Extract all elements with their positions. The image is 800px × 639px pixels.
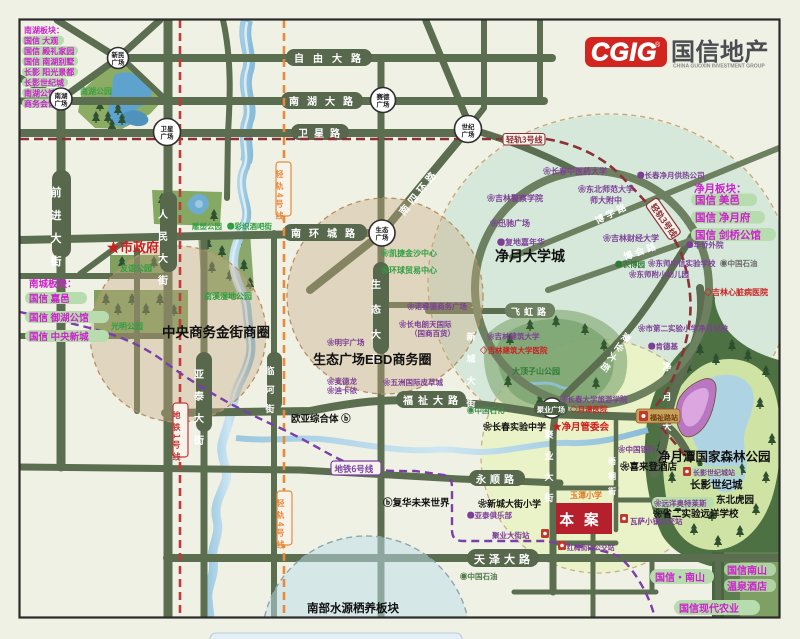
svg-text:净月大学城: 净月大学城 xyxy=(495,246,565,266)
svg-text:南城板块：: 南城板块： xyxy=(29,276,77,290)
svg-text:❀明宇广场: ❀明宇广场 xyxy=(326,337,365,348)
svg-text:●肯德基: ●肯德基 xyxy=(648,341,678,352)
svg-text:聚业大街站: 聚业大街站 xyxy=(491,530,530,541)
svg-text:前进大街: 前进大街 xyxy=(48,184,64,276)
svg-text:南湖板块：: 南湖板块： xyxy=(24,25,64,36)
svg-text:轻轨3号线: 轻轨3号线 xyxy=(506,135,542,146)
svg-text:本案: 本案 xyxy=(560,509,609,530)
svg-text:❀迅驰广场: ❀迅驰广场 xyxy=(489,218,530,229)
svg-text:大顶子山公园: 大顶子山公园 xyxy=(512,366,560,377)
svg-text:●华侨外院: ●华侨外院 xyxy=(686,240,724,251)
svg-text:◇月潭医院: ◇月潭医院 xyxy=(569,404,608,415)
svg-text:雕塑公园: 雕塑公园 xyxy=(192,221,222,232)
svg-text:福祉路站: 福祉路站 xyxy=(649,413,678,423)
svg-text:CGIG: CGIG xyxy=(591,39,657,67)
svg-text:福祉大路: 福祉大路 xyxy=(402,392,463,407)
svg-text:®: ® xyxy=(655,41,661,49)
svg-text:◉中国石油: ◉中国石油 xyxy=(720,258,758,269)
svg-text:（国商百货）: （国商百货） xyxy=(410,328,455,339)
svg-text:临河街: 临河街 xyxy=(264,364,277,421)
svg-text:❀五洲国际皮草城: ❀五洲国际皮草城 xyxy=(382,377,443,388)
svg-text:◉中国石油: ◉中国石油 xyxy=(460,571,498,582)
svg-text:长影世纪城: 长影世纪城 xyxy=(24,78,64,89)
svg-text:南溪湿地公园: 南溪湿地公园 xyxy=(204,291,252,302)
svg-text:国信·南山: 国信·南山 xyxy=(655,569,705,584)
svg-text:国信 南湖别墅: 国信 南湖别墅 xyxy=(24,57,74,68)
svg-text:❀环球贸易中心: ❀环球贸易中心 xyxy=(380,265,437,276)
svg-text:❀东师附小幼儿园: ❀东师附小幼儿园 xyxy=(628,269,689,280)
svg-text:聚业大街: 聚业大街 xyxy=(543,428,556,512)
svg-text:广场: 广场 xyxy=(462,129,476,139)
svg-text:亚泰大街: 亚泰大街 xyxy=(192,366,207,454)
svg-text:ⓑ复华未来世界: ⓑ复华未来世界 xyxy=(383,495,450,509)
svg-text:❀迪卡侬: ❀迪卡侬 xyxy=(326,385,357,396)
svg-text:广场: 广场 xyxy=(55,98,69,108)
svg-text:❀长春中医药大学: ❀长春中医药大学 xyxy=(542,166,607,177)
svg-text:❀东师中信实验学校: ❀东师中信实验学校 xyxy=(647,258,716,269)
svg-text:中央商务金街商圈: 中央商务金街商圈 xyxy=(162,321,270,341)
svg-text:国信 净月府: 国信 净月府 xyxy=(695,210,751,225)
svg-text:★净月管委会: ★净月管委会 xyxy=(552,419,610,433)
svg-text:南湖大路: 南湖大路 xyxy=(289,93,361,108)
svg-text:❀吉林财经大学: ❀吉林财经大学 xyxy=(602,233,659,244)
svg-text:●彩织酒吧街: ●彩织酒吧街 xyxy=(227,221,272,232)
svg-text:飞虹路: 飞虹路 xyxy=(511,305,550,318)
svg-text:自由大路: 自由大路 xyxy=(294,50,370,65)
svg-text:红梅街口公交站: 红梅街口公交站 xyxy=(567,542,615,552)
svg-text:国信 御湖公馆: 国信 御湖公馆 xyxy=(29,310,89,324)
svg-text:天泽大路: 天泽大路 xyxy=(474,551,534,567)
svg-text:永顺路: 永顺路 xyxy=(475,471,518,486)
svg-text:光明公园: 光明公园 xyxy=(110,321,143,332)
svg-text:国信 殿礼家园: 国信 殿礼家园 xyxy=(24,46,74,57)
svg-text:●亚泰俱乐部: ●亚泰俱乐部 xyxy=(467,510,512,521)
svg-text:广场: 广场 xyxy=(376,232,390,242)
svg-text:南环城路: 南环城路 xyxy=(291,225,363,240)
svg-text:师大附中: 师大附中 xyxy=(590,195,622,206)
svg-text:国信 美邑: 国信 美邑 xyxy=(695,193,740,208)
svg-text:广场: 广场 xyxy=(377,99,391,109)
svg-text:轻轨4号线: 轻轨4号线 xyxy=(274,169,285,222)
svg-text:地铁1号线: 地铁1号线 xyxy=(171,410,182,463)
svg-text:CHINA GUOXIN INVESTMENT GROUP: CHINA GUOXIN INVESTMENT GROUP xyxy=(673,64,765,70)
svg-text:国信现代农业: 国信现代农业 xyxy=(679,600,739,615)
svg-text:生态广场EBD商务圈: 生态广场EBD商务圈 xyxy=(313,349,431,368)
svg-text:欧亚综合体 ⓑ: 欧亚综合体 ⓑ xyxy=(291,411,351,425)
svg-text:玉潭小学: 玉潭小学 xyxy=(570,490,602,501)
svg-text:长影世纪城站: 长影世纪城站 xyxy=(693,468,735,478)
svg-text:❀吉林警察学院: ❀吉林警察学院 xyxy=(486,193,543,204)
svg-text:东北虎园: 东北虎园 xyxy=(716,492,754,506)
svg-text:国信 中央新城: 国信 中央新城 xyxy=(29,329,89,343)
svg-text:❀诺睿德商务广场: ❀诺睿德商务广场 xyxy=(406,301,467,312)
svg-text:南湖公园: 南湖公园 xyxy=(80,86,112,97)
svg-text:广场: 广场 xyxy=(112,57,126,67)
svg-text:温泉酒店: 温泉酒店 xyxy=(727,578,767,593)
svg-text:国信南山: 国信南山 xyxy=(727,562,767,577)
svg-text:❀市第二实验小学净月分校: ❀市第二实验小学净月分校 xyxy=(637,323,728,334)
svg-text:南部水源栖养板块: 南部水源栖养板块 xyxy=(307,600,399,616)
svg-text:广场: 广场 xyxy=(161,131,175,141)
svg-text:❀长春实验中学: ❀长春实验中学 xyxy=(482,420,546,433)
svg-text:国信 嘉邑: 国信 嘉邑 xyxy=(29,291,70,305)
svg-text:长影 阳光景都: 长影 阳光景都 xyxy=(24,67,74,78)
svg-text:❀新城大街小学: ❀新城大街小学 xyxy=(477,497,541,510)
svg-text:★市政府: ★市政府 xyxy=(107,237,159,256)
svg-text:❀东北师范大学: ❀东北师范大学 xyxy=(577,184,634,195)
svg-text:❀凯捷金沙中心: ❀凯捷金沙中心 xyxy=(380,248,437,259)
svg-text:❀省二实验远洋学校: ❀省二实验远洋学校 xyxy=(652,506,739,520)
svg-text:长影世纪城: 长影世纪城 xyxy=(690,477,743,492)
svg-text:●农博园: ●农博园 xyxy=(615,259,645,270)
svg-text:●长春净月供热公司: ●长春净月供热公司 xyxy=(637,170,705,181)
svg-text:◉中国石化: ◉中国石化 xyxy=(467,405,505,416)
svg-text:❀喜来登酒店: ❀喜来登酒店 xyxy=(619,459,678,473)
svg-text:❀中国银行: ❀中国银行 xyxy=(617,444,656,455)
svg-text:国信 大观: 国信 大观 xyxy=(24,36,58,47)
svg-text:◇吉林建筑大学医院: ◇吉林建筑大学医院 xyxy=(479,345,548,356)
svg-text:梧桐街: 梧桐街 xyxy=(607,456,618,501)
svg-text:国信地产: 国信地产 xyxy=(671,32,769,67)
svg-text:地铁6号线: 地铁6号线 xyxy=(335,463,374,475)
svg-text:❀吉林建筑大学: ❀吉林建筑大学 xyxy=(486,331,540,342)
svg-text:◇吉林心脏病医院: ◇吉林心脏病医院 xyxy=(703,287,768,298)
svg-text:聚业广场: 聚业广场 xyxy=(536,405,565,415)
svg-text:轻轨4号线: 轻轨4号线 xyxy=(275,498,286,551)
svg-text:友谊公园: 友谊公园 xyxy=(119,263,152,274)
